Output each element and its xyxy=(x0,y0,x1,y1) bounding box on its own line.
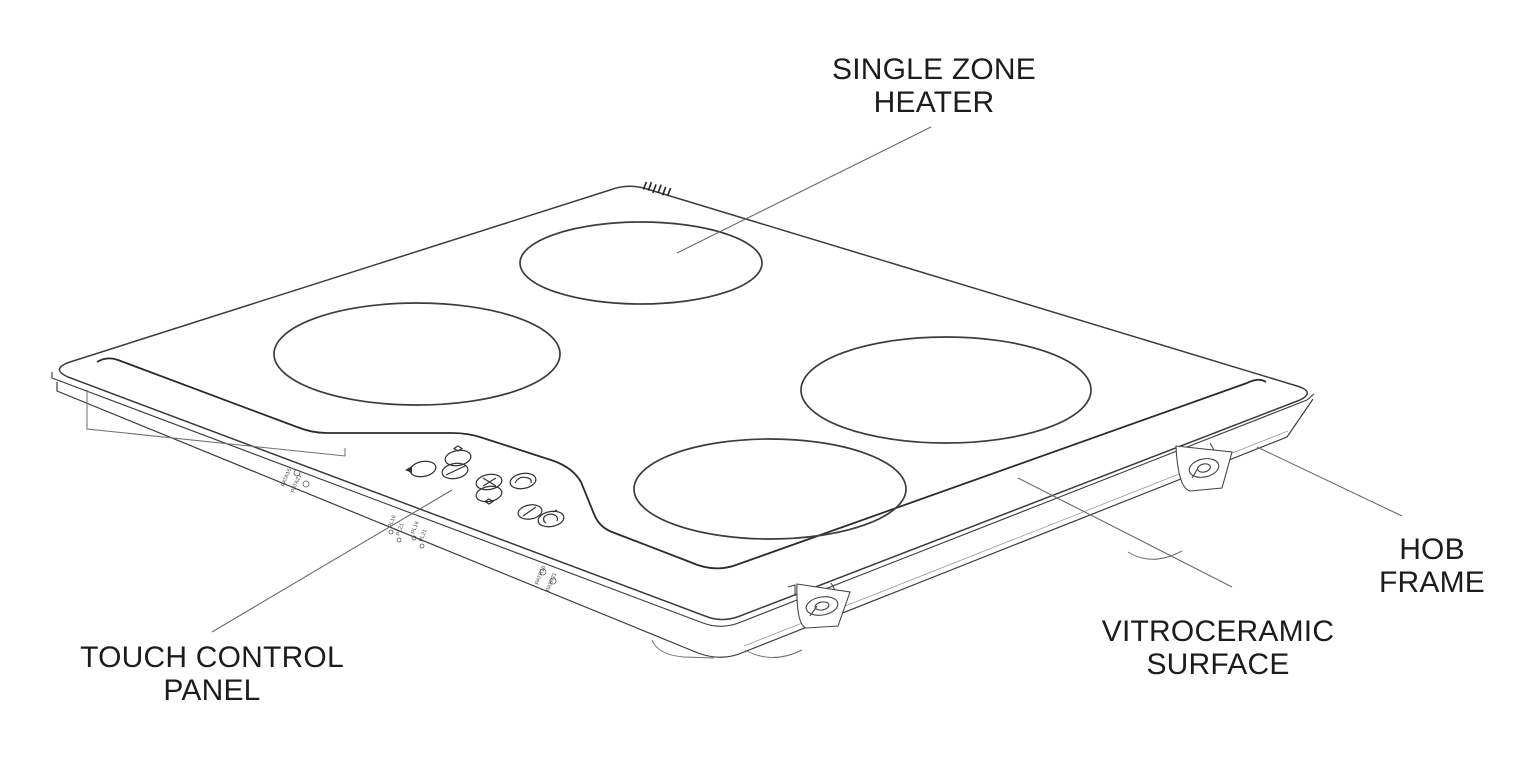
label-line: PANEL xyxy=(80,674,344,707)
leader-hob-frame xyxy=(1257,447,1402,516)
frame-marking: PL21 xyxy=(418,529,428,543)
leader-vitroceramic-surface xyxy=(1018,478,1232,587)
label-hob-frame: HOB FRAME xyxy=(1379,533,1485,599)
hob-diagram: PATA16 PATA21 PL16 PL21 PL16 PL21 PATR16… xyxy=(0,0,1532,768)
mounting-clamp-front xyxy=(788,583,850,628)
mounting-clamp-right xyxy=(1176,443,1232,491)
frame-marking: PL21 xyxy=(395,523,405,537)
frame-marking: PL16 xyxy=(410,521,420,535)
label-line: TOUCH CONTROL xyxy=(80,641,344,674)
leader-single-zone-heater xyxy=(677,127,931,253)
leader-touch-control-panel xyxy=(212,490,452,632)
label-line: FRAME xyxy=(1379,566,1485,599)
label-line: HEATER xyxy=(832,86,1036,119)
label-touch-control-panel: TOUCH CONTROL PANEL xyxy=(80,641,344,707)
frame-marking: PL16 xyxy=(387,515,397,529)
label-line: VITROCERAMIC xyxy=(1102,615,1334,648)
frame-marking: PATA16 xyxy=(280,468,293,488)
label-vitroceramic-surface: VITROCERAMIC SURFACE xyxy=(1102,615,1334,681)
frame-marking: PATR16 xyxy=(534,565,547,586)
housing-foot-center xyxy=(745,650,802,658)
frame-marking: PATR21 xyxy=(545,572,558,593)
hob-glass-surface xyxy=(59,186,1307,619)
label-line: SINGLE ZONE xyxy=(832,53,1036,86)
label-line: SURFACE xyxy=(1102,648,1334,681)
label-line: HOB xyxy=(1379,533,1485,566)
label-single-zone-heater: SINGLE ZONE HEATER xyxy=(832,53,1036,119)
